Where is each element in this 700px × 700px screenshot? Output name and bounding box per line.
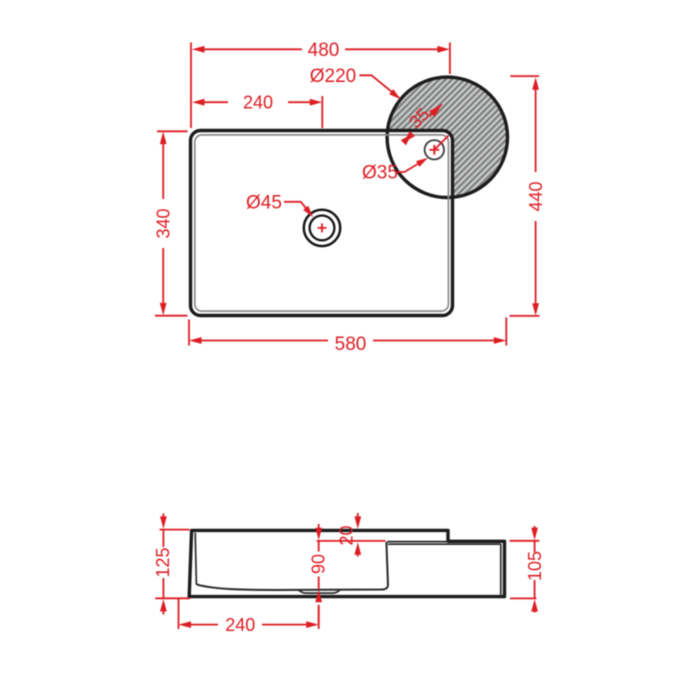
svg-text:240: 240 (225, 615, 255, 635)
svg-text:Ø35: Ø35 (362, 163, 398, 184)
svg-text:Ø45: Ø45 (246, 192, 282, 213)
svg-text:340: 340 (154, 208, 174, 238)
svg-text:240: 240 (243, 93, 273, 113)
svg-text:20: 20 (336, 525, 356, 545)
svg-text:125: 125 (153, 547, 173, 577)
svg-text:105: 105 (525, 551, 545, 581)
svg-text:90: 90 (309, 554, 329, 574)
svg-text:Ø220: Ø220 (310, 66, 356, 87)
svg-text:480: 480 (308, 40, 340, 61)
svg-text:440: 440 (526, 181, 546, 211)
svg-text:580: 580 (335, 334, 367, 355)
